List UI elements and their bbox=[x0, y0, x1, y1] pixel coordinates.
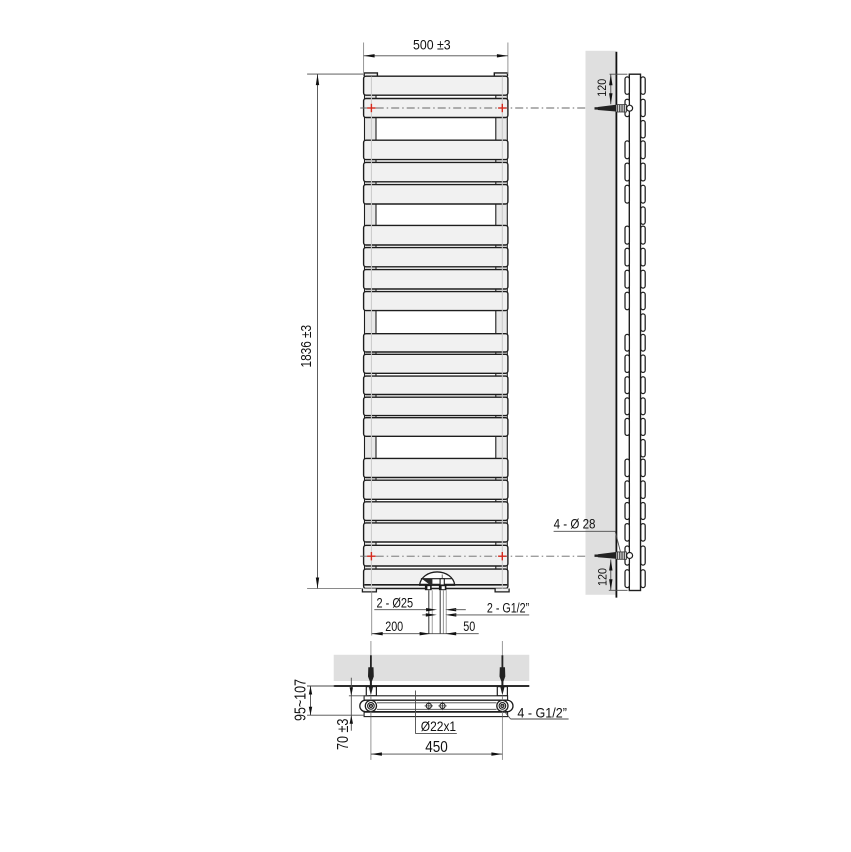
svg-text:95~107: 95~107 bbox=[292, 679, 309, 721]
svg-text:200: 200 bbox=[385, 619, 403, 634]
svg-text:70 ±3: 70 ±3 bbox=[335, 719, 352, 751]
svg-text:4 - Ø 28: 4 - Ø 28 bbox=[554, 515, 596, 531]
svg-text:450: 450 bbox=[425, 739, 448, 756]
svg-text:120: 120 bbox=[597, 79, 609, 97]
svg-text:120: 120 bbox=[597, 568, 609, 586]
svg-text:2 - G1/2”: 2 - G1/2” bbox=[487, 601, 529, 616]
svg-text:Ø22x1: Ø22x1 bbox=[421, 718, 456, 734]
svg-text:2 - Ø25: 2 - Ø25 bbox=[377, 595, 414, 611]
svg-text:1836 ±3: 1836 ±3 bbox=[299, 325, 315, 368]
svg-text:4 - G1/2”: 4 - G1/2” bbox=[517, 705, 567, 721]
svg-text:500 ±3: 500 ±3 bbox=[413, 37, 451, 53]
svg-text:50: 50 bbox=[463, 619, 475, 634]
